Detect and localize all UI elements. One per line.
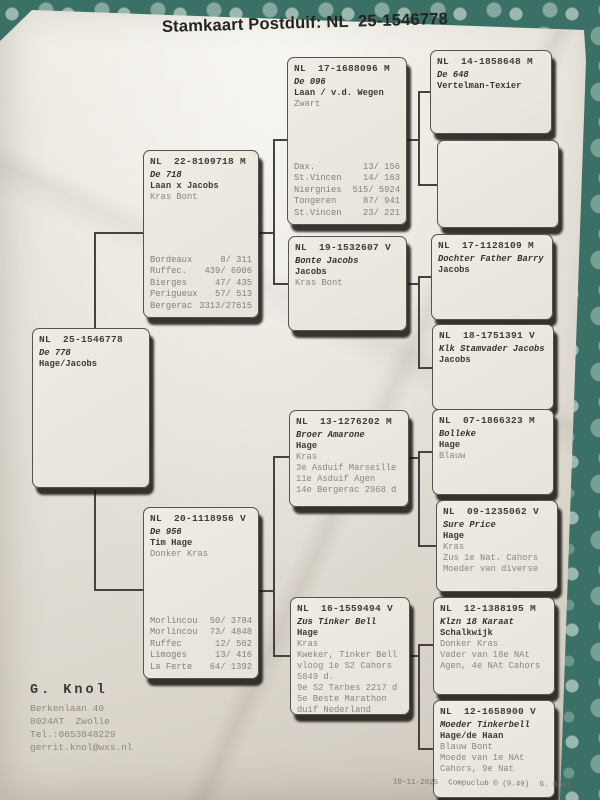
race-score: 13/ 416 bbox=[215, 650, 252, 662]
pigeon-strain: Hage bbox=[443, 531, 551, 542]
race-name: Bierges bbox=[150, 278, 187, 290]
pigeon-color: Kras Bont bbox=[295, 278, 400, 289]
pigeon-color: Kras bbox=[296, 452, 402, 463]
owner-address: Berkenlaan 40 bbox=[30, 702, 133, 715]
pedigree-box-18-1751391: NL 18-1751391 V Klk Stamvader Jacobs Jac… bbox=[432, 324, 554, 410]
ring-number: NL 18-1751391 V bbox=[439, 330, 547, 341]
result-row: Perigueux57/ 513 bbox=[150, 289, 252, 301]
owner-phone: Tel.:0653848229 bbox=[30, 728, 133, 741]
pigeon-info: Bolleke Hage Blauw bbox=[439, 429, 547, 462]
pigeon-name: De 096 bbox=[294, 77, 400, 88]
pigeon-name: De 778 bbox=[39, 348, 143, 359]
achievement: duif Nederland bbox=[297, 705, 403, 715]
race-score: 57/ 513 bbox=[215, 289, 252, 301]
pigeon-color: Donker Kras bbox=[150, 549, 252, 560]
race-score: 439/ 6906 bbox=[204, 266, 252, 278]
pedigree-box-17-1128109: NL 17-1128109 M Dochter Father Barry Jac… bbox=[431, 234, 553, 320]
ring-number: NL 16-1559494 V bbox=[297, 603, 403, 614]
pigeon-info: De 956 Tim Hage Donker Kras bbox=[150, 527, 252, 560]
achievement: Moede van 1e NAt bbox=[440, 753, 548, 764]
achievement: Moeder van diverse bbox=[443, 564, 551, 575]
connector-line bbox=[418, 645, 420, 749]
race-results: Dax.13/ 156 St.Vincen14/ 163 Niergnies51… bbox=[294, 162, 400, 220]
pedigree-box-07-1866323: NL 07-1866323 M Bolleke Hage Blauw bbox=[432, 409, 554, 495]
connector-line bbox=[94, 232, 143, 234]
pigeon-info: De 648 Vertelman-Texier bbox=[437, 70, 545, 92]
ring-number: NL 13-1276202 M bbox=[296, 416, 402, 427]
owner-city: 8024AT Zwolle bbox=[30, 715, 133, 728]
pigeon-info: Klzn 18 Karaat Schalkwijk Donker Kras Va… bbox=[440, 617, 548, 672]
ring-number: NL 17-1128109 M bbox=[438, 240, 546, 251]
pigeon-strain: Vertelman-Texier bbox=[437, 81, 545, 92]
pigeon-strain: Hage/de Haan bbox=[440, 731, 548, 742]
achievement: 5e Beste Marathon bbox=[297, 694, 403, 705]
race-name: Limoges bbox=[150, 650, 187, 662]
achievement: vloog 1e S2 Cahors bbox=[297, 661, 403, 672]
pigeon-info: Klk Stamvader Jacobs Jacobs bbox=[439, 344, 547, 366]
race-name: Bordeaux bbox=[150, 255, 192, 267]
pigeon-strain: Jacobs bbox=[439, 355, 547, 366]
connector-line bbox=[259, 232, 274, 234]
race-name: Perigueux bbox=[150, 289, 198, 301]
race-name: Ruffec. bbox=[150, 266, 187, 278]
race-score: 73/ 4848 bbox=[210, 627, 252, 639]
pigeon-name: Bonte Jacobs bbox=[295, 256, 400, 267]
connector-line bbox=[418, 748, 433, 750]
ring-number: NL 09-1235062 V bbox=[443, 506, 551, 517]
race-score: 515/ 5924 bbox=[352, 185, 400, 197]
result-row: Niergnies515/ 5924 bbox=[294, 185, 400, 197]
pigeon-name: Klzn 18 Karaat bbox=[440, 617, 548, 628]
race-name: Niergnies bbox=[294, 185, 342, 197]
pigeon-strain: Laan / v.d. Wegen bbox=[294, 88, 400, 99]
connector-line bbox=[418, 276, 431, 278]
pigeon-color: Kras Bont bbox=[150, 192, 252, 203]
ring-number: NL 20-1118956 V bbox=[150, 513, 252, 524]
result-row: Morlincou73/ 4848 bbox=[150, 627, 252, 639]
race-name: St.Vincen bbox=[294, 173, 342, 185]
connector-line bbox=[273, 456, 289, 458]
connector-line bbox=[259, 590, 274, 592]
pigeon-color: Donker Kras bbox=[440, 639, 548, 650]
connector-line bbox=[418, 367, 432, 369]
pigeon-strain: Hage/Jacobs bbox=[39, 359, 143, 370]
race-score: 23/ 221 bbox=[363, 208, 400, 220]
result-row: La Ferte64/ 1392 bbox=[150, 662, 252, 674]
connector-line bbox=[94, 233, 96, 328]
footer-program: Compuclub © (9.49) bbox=[448, 779, 529, 788]
pigeon-info: Zus Tinker Bell Hage Kras Kweker, Tinker… bbox=[297, 617, 403, 715]
pigeon-strain: Tim Hage bbox=[150, 538, 252, 549]
race-score: 64/ 1392 bbox=[210, 662, 252, 674]
ring-number: NL 12-1388195 M bbox=[440, 603, 548, 614]
pigeon-info: De 096 Laan / v.d. Wegen Zwart bbox=[294, 77, 400, 110]
footer-date: 10-11-2025 bbox=[393, 778, 438, 787]
pigeon-name: Bolleke bbox=[439, 429, 547, 440]
pigeon-color: Kras bbox=[297, 639, 403, 650]
pedigree-box-empty bbox=[437, 140, 559, 228]
result-row: Ruffec.439/ 6906 bbox=[150, 266, 252, 278]
owner-block: G. Knol Berkenlaan 40 8024AT Zwolle Tel.… bbox=[30, 683, 133, 754]
achievement: 11e Asduif Agen bbox=[296, 474, 402, 485]
footer-author: G. Knol bbox=[539, 781, 571, 790]
connector-line bbox=[273, 457, 275, 656]
pigeon-color: Blauw bbox=[439, 451, 547, 462]
connector-line bbox=[418, 452, 420, 546]
pedigree-box-14-1858648: NL 14-1858648 M De 648 Vertelman-Texier bbox=[430, 50, 552, 134]
pedigree-box-13-1276202: NL 13-1276202 M Broer Amarone Hage Kras … bbox=[289, 410, 409, 507]
connector-line bbox=[94, 589, 143, 591]
pigeon-color: Blauw Bont bbox=[440, 742, 548, 753]
pigeon-info: De 718 Laan x Jacobs Kras Bont bbox=[150, 170, 252, 203]
race-name: Ruffec bbox=[150, 639, 182, 651]
pigeon-strain: Laan x Jacobs bbox=[150, 181, 252, 192]
connector-line bbox=[418, 91, 430, 93]
result-row: Morlincou50/ 3784 bbox=[150, 616, 252, 628]
pedigree-box-20-1118956: NL 20-1118956 V De 956 Tim Hage Donker K… bbox=[143, 507, 259, 679]
race-name: St.Vincen bbox=[294, 208, 342, 220]
race-score: 13/ 156 bbox=[363, 162, 400, 174]
pigeon-name: De 718 bbox=[150, 170, 252, 181]
result-row: Dax.13/ 156 bbox=[294, 162, 400, 174]
result-row: Ruffec12/ 562 bbox=[150, 639, 252, 651]
achievement: Zus 1e Nat. Cahors bbox=[443, 553, 551, 564]
race-score: 47/ 435 bbox=[215, 278, 252, 290]
result-row: Bierges47/ 435 bbox=[150, 278, 252, 290]
pigeon-name: De 648 bbox=[437, 70, 545, 81]
pedigree-box-22-8109718: NL 22-8109718 M De 718 Laan x Jacobs Kra… bbox=[143, 150, 259, 318]
result-row: Tongeren87/ 941 bbox=[294, 196, 400, 208]
achievement: Kweker, Tinker Bell bbox=[297, 650, 403, 661]
race-name: La Ferte bbox=[150, 662, 192, 674]
pigeon-name: Moeder Tinkerbell bbox=[440, 720, 548, 731]
pigeon-color: Zwart bbox=[294, 99, 400, 110]
achievement: Vader van 18e NAt bbox=[440, 650, 548, 661]
connector-line bbox=[273, 140, 275, 284]
race-score: 3313/27615 bbox=[199, 301, 252, 313]
pigeon-info: Moeder Tinkerbell Hage/de Haan Blauw Bon… bbox=[440, 720, 548, 775]
pigeon-name: Dochter Father Barry bbox=[438, 254, 546, 265]
connector-line bbox=[418, 92, 420, 185]
pigeon-name: Broer Amarone bbox=[296, 430, 402, 441]
pigeon-strain: Hage bbox=[297, 628, 403, 639]
pedigree-box-17-1688096: NL 17-1688096 M De 096 Laan / v.d. Wegen… bbox=[287, 57, 407, 225]
ring-number: NL 12-1658900 V bbox=[440, 706, 548, 717]
race-score: 12/ 562 bbox=[215, 639, 252, 651]
achievement: 3e Asduif Marseille bbox=[296, 463, 402, 474]
pigeon-strain: Jacobs bbox=[295, 267, 400, 278]
pigeon-strain: Hage bbox=[439, 440, 547, 451]
race-score: 87/ 941 bbox=[363, 196, 400, 208]
achievement: Agen, 4e NAt Cahors bbox=[440, 661, 548, 672]
race-score: 50/ 3784 bbox=[210, 616, 252, 628]
ring-number: NL 22-8109718 M bbox=[150, 156, 252, 167]
race-name: Bergerac bbox=[150, 301, 192, 313]
result-row: Limoges13/ 416 bbox=[150, 650, 252, 662]
ring-number: NL 17-1688096 M bbox=[294, 63, 400, 74]
owner-email: gerrit.knol@wxs.nl bbox=[30, 741, 133, 754]
pedigree-box-16-1559494: NL 16-1559494 V Zus Tinker Bell Hage Kra… bbox=[290, 597, 410, 715]
pigeon-name: Sure Price bbox=[443, 520, 551, 531]
photo-of-pedigree-card: Stamkaart Postduif: NL 25-1546778 NL bbox=[0, 0, 600, 800]
connector-line bbox=[418, 451, 432, 453]
result-row: St.Vincen14/ 163 bbox=[294, 173, 400, 185]
connector-line bbox=[418, 184, 437, 186]
race-name: Dax. bbox=[294, 162, 315, 174]
pedigree-box-25-1546778-subject: NL 25-1546778 De 778 Hage/Jacobs bbox=[32, 328, 150, 488]
owner-name: G. Knol bbox=[30, 683, 133, 698]
pedigree-box-19-1532607: NL 19-1532607 V Bonte Jacobs Jacobs Kras… bbox=[288, 236, 407, 331]
pigeon-info: Broer Amarone Hage Kras 3e Asduif Marsei… bbox=[296, 430, 402, 496]
connector-line bbox=[418, 545, 436, 547]
ring-number: NL 07-1866323 M bbox=[439, 415, 547, 426]
race-results: Morlincou50/ 3784 Morlincou73/ 4848 Ruff… bbox=[150, 616, 252, 674]
achievement: Cahors, 9e Nat bbox=[440, 764, 548, 775]
ring-number: NL 25-1546778 bbox=[39, 334, 143, 345]
connector-line bbox=[418, 277, 420, 368]
race-score: 14/ 163 bbox=[363, 173, 400, 185]
pigeon-info: De 778 Hage/Jacobs bbox=[39, 348, 143, 370]
race-name: Morlincou bbox=[150, 616, 198, 628]
achievement: 14e Bergerac 2968 d bbox=[296, 485, 402, 496]
ring-number: NL 19-1532607 V bbox=[295, 242, 400, 253]
connector-line bbox=[273, 139, 287, 141]
pigeon-info: Bonte Jacobs Jacobs Kras Bont bbox=[295, 256, 400, 289]
ring-number: NL 14-1858648 M bbox=[437, 56, 545, 67]
connector-line bbox=[273, 655, 290, 657]
achievement: 5849 d. bbox=[297, 672, 403, 683]
connector-line bbox=[273, 283, 288, 285]
pedigree-box-09-1235062: NL 09-1235062 V Sure Price Hage Kras Zus… bbox=[436, 500, 558, 592]
pigeon-strain: Jacobs bbox=[438, 265, 546, 276]
result-row: St.Vincen23/ 221 bbox=[294, 208, 400, 220]
pigeon-info: Dochter Father Barry Jacobs bbox=[438, 254, 546, 276]
pigeon-name: Klk Stamvader Jacobs bbox=[439, 344, 547, 355]
race-score: 8/ 311 bbox=[220, 255, 252, 267]
pigeon-name: De 956 bbox=[150, 527, 252, 538]
connector-line bbox=[94, 490, 96, 590]
race-name: Tongeren bbox=[294, 196, 336, 208]
pigeon-color: Kras bbox=[443, 542, 551, 553]
pigeon-name: Zus Tinker Bell bbox=[297, 617, 403, 628]
connector-line bbox=[418, 644, 433, 646]
race-name: Morlincou bbox=[150, 627, 198, 639]
race-results: Bordeaux8/ 311 Ruffec.439/ 6906 Bierges4… bbox=[150, 255, 252, 313]
pigeon-info: Sure Price Hage Kras Zus 1e Nat. Cahors … bbox=[443, 520, 551, 575]
pigeon-strain: Schalkwijk bbox=[440, 628, 548, 639]
pedigree-box-12-1388195: NL 12-1388195 M Klzn 18 Karaat Schalkwij… bbox=[433, 597, 555, 695]
result-row: Bordeaux8/ 311 bbox=[150, 255, 252, 267]
achievement: 9e S2 Tarbes 2217 d bbox=[297, 683, 403, 694]
result-row: Bergerac3313/27615 bbox=[150, 301, 252, 313]
pigeon-strain: Hage bbox=[296, 441, 402, 452]
